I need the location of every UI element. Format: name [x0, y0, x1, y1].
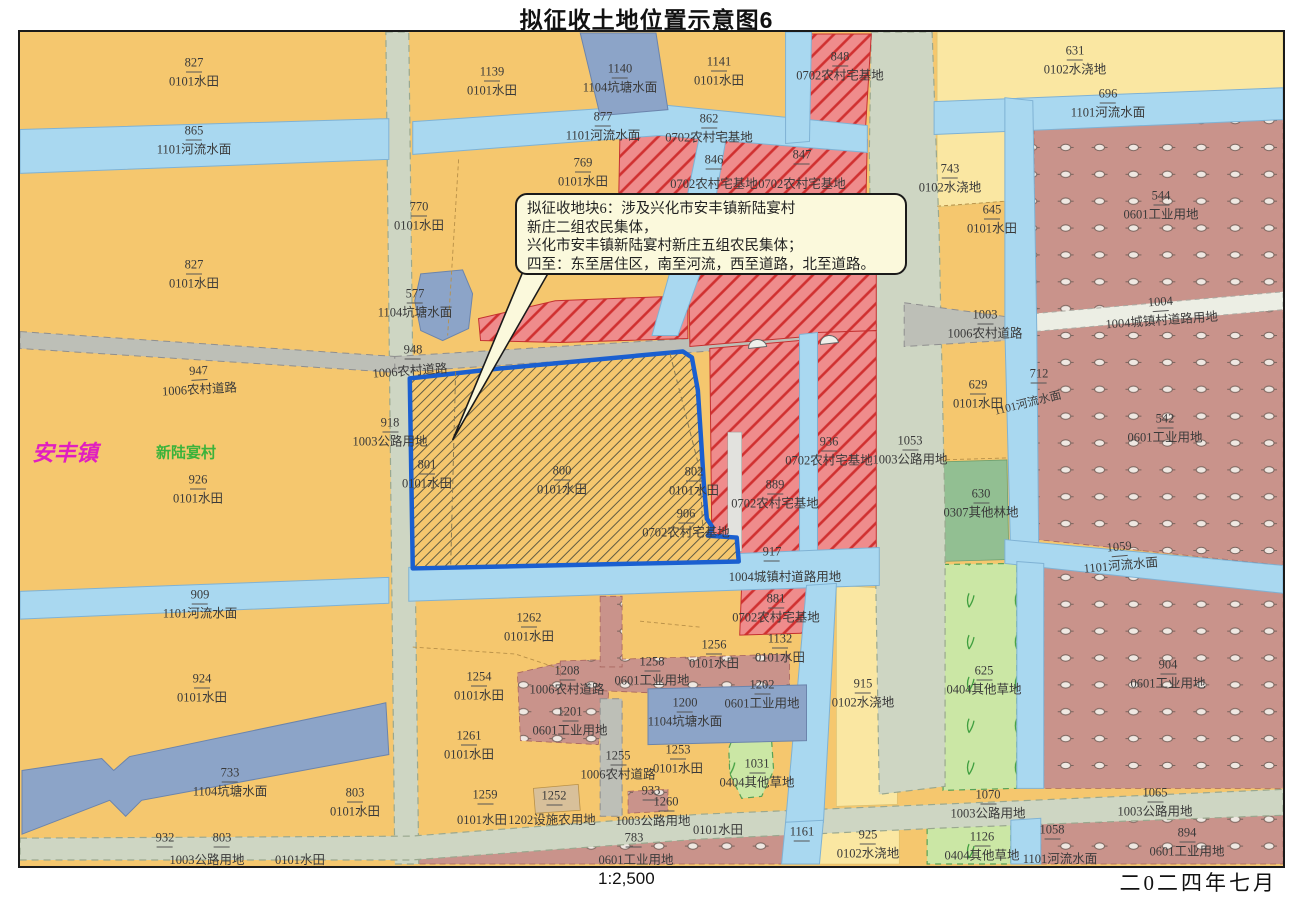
map-label: 11390101水田 [467, 65, 517, 98]
map-label: 8010101水田 [402, 458, 452, 491]
map-label: 12540101水田 [454, 670, 504, 703]
map-label: 9181003公路用地 [352, 416, 427, 449]
page: { "title": "拟征收土地位置示意图6", "scale_label":… [0, 0, 1293, 900]
map-label: 12620101水田 [504, 611, 554, 644]
map-label: 8890702农村宅基地 [731, 478, 819, 511]
map-label: 0101水田 [693, 823, 743, 837]
map-label: 6961101河流水面 [1071, 87, 1146, 120]
map-label: 9260101水田 [173, 473, 223, 506]
map-label: 948 [404, 343, 423, 362]
map-label: 847 [793, 148, 812, 167]
map-label: 932 [156, 831, 175, 850]
map-label: 10651003公路用地 [1117, 786, 1192, 819]
map-label: 8771101河流水面 [566, 110, 641, 143]
map-label: 783 [625, 831, 644, 850]
map-label: 12560101水田 [689, 638, 739, 671]
map-label: 12010601工业用地 [532, 705, 607, 738]
map-label: 9240101水田 [177, 672, 227, 705]
map-label: 1003公路用地 [615, 814, 690, 828]
map-label: 8270101水田 [169, 258, 219, 291]
map-label: 10041004城镇村道路用地 [1104, 291, 1219, 332]
map-label: 12610101水田 [444, 729, 494, 762]
map-label: 8620702农村宅基地 [665, 112, 753, 145]
callout-line: 兴化市安丰镇新陆宴村新庄五组农民集体； [527, 237, 895, 256]
map-label: 新陆宴村 [156, 446, 216, 463]
map-label: 1101河流水面 [993, 389, 1063, 418]
map-label: 8000101水田 [537, 464, 587, 497]
map-label: 6450101水田 [967, 203, 1017, 236]
map-label: 0702农村宅基地 [670, 177, 758, 191]
map-label: 7700101水田 [394, 200, 444, 233]
map-label: 9040601工业用地 [1130, 658, 1205, 691]
map-frame: 8270101水田8651101河流水面8270101水田9471006农村道路… [18, 30, 1285, 868]
map-label: 8651101河流水面 [157, 124, 232, 157]
map-label: 1161 [790, 825, 815, 844]
map-label: 9150102水浇地 [832, 677, 895, 710]
map-label: 12580601工业用地 [614, 655, 689, 688]
map-label: 917 [763, 545, 782, 564]
map-label: 803 [213, 831, 232, 850]
map-label: 7690101水田 [558, 156, 608, 189]
map-label: 12081006农村道路 [529, 664, 604, 697]
map-label: 5440601工业用地 [1123, 189, 1198, 222]
map-label: 12530101水田 [653, 743, 703, 776]
map-label: 1101河流水面 [1023, 852, 1098, 866]
map-label: 11260404其他草地 [944, 830, 1019, 863]
label-layer: 8270101水田8651101河流水面8270101水田9471006农村道路… [20, 32, 1283, 866]
map-label: 6310102水浇地 [1044, 44, 1107, 77]
map-label: 10591101河流水面 [1081, 536, 1158, 575]
map-label: 846 [705, 153, 724, 172]
map-label: 0702农村宅基地 [758, 177, 846, 191]
map-label: 8020101水田 [669, 465, 719, 498]
map-label: 6290101水田 [953, 378, 1003, 411]
callout-line: 四至：东至居住区，南至河流，西至道路，北至道路。 [527, 256, 895, 275]
map-label: 8480702农村宅基地 [796, 50, 884, 83]
map-label: 安丰镇 [32, 442, 98, 467]
map-label: 0601工业用地 [598, 853, 673, 867]
map-label: 8810702农村宅基地 [732, 592, 820, 625]
map-label: 712 [1030, 367, 1049, 386]
map-label: 10531003公路用地 [872, 434, 947, 467]
callout-line: 新庄二组农民集体， [527, 219, 895, 238]
map-label: 11401104坑塘水面 [583, 62, 658, 95]
map-label: 7331104坑塘水面 [193, 766, 268, 799]
map-label: 1006农村道路 [372, 361, 448, 380]
scale-label: 1:2,500 [598, 869, 655, 889]
map-label: 8030101水田 [330, 786, 380, 819]
map-label: 0101水田 [457, 813, 507, 827]
map-label: 5420601工业用地 [1127, 412, 1202, 445]
map-label: 1202设施农用地 [508, 813, 596, 827]
map-label: 7430102水浇地 [919, 162, 982, 195]
map-label: 1004城镇村道路用地 [729, 570, 842, 584]
map-label: 5771104坑塘水面 [378, 287, 453, 320]
map-label: 9250102水浇地 [837, 828, 900, 861]
map-label: 9091101河流水面 [163, 588, 238, 621]
map-label: 6300307其他林地 [943, 487, 1018, 520]
date-label: 二0二四年七月 [1120, 867, 1278, 897]
map-label: 10701003公路用地 [950, 788, 1025, 821]
map-label: 8270101水田 [169, 56, 219, 89]
map-label: 12551006农村道路 [580, 749, 655, 782]
map-label: 10031006农村道路 [947, 308, 1022, 341]
map-label: 0101水田 [275, 853, 325, 867]
map-label: 9471006农村道路 [161, 362, 238, 399]
map-label: 10310404其他草地 [719, 757, 794, 790]
map-label: 1252 [542, 789, 567, 808]
map-label: 9360702农村宅基地 [785, 435, 873, 468]
map-label: 12001104坑塘水面 [648, 696, 723, 729]
callout-box: 拟征收地块6：涉及兴化市安丰镇新陆宴村 新庄二组农民集体， 兴化市安丰镇新陆宴村… [515, 193, 907, 275]
map-label: 11320101水田 [755, 632, 805, 665]
map-label: 9060702农村宅基地 [642, 507, 730, 540]
map-label: 8940601工业用地 [1149, 826, 1224, 859]
map-label: 6250404其他草地 [946, 664, 1021, 697]
map-label: 1058 [1040, 823, 1065, 842]
map-label: 12020601工业用地 [724, 678, 799, 711]
map-label: 1259 [473, 788, 498, 807]
callout-line: 拟征收地块6：涉及兴化市安丰镇新陆宴村 [527, 200, 895, 219]
map-label: 1003公路用地 [169, 853, 244, 867]
map-label: 11410101水田 [694, 55, 744, 88]
map-label: 1260 [654, 795, 679, 814]
